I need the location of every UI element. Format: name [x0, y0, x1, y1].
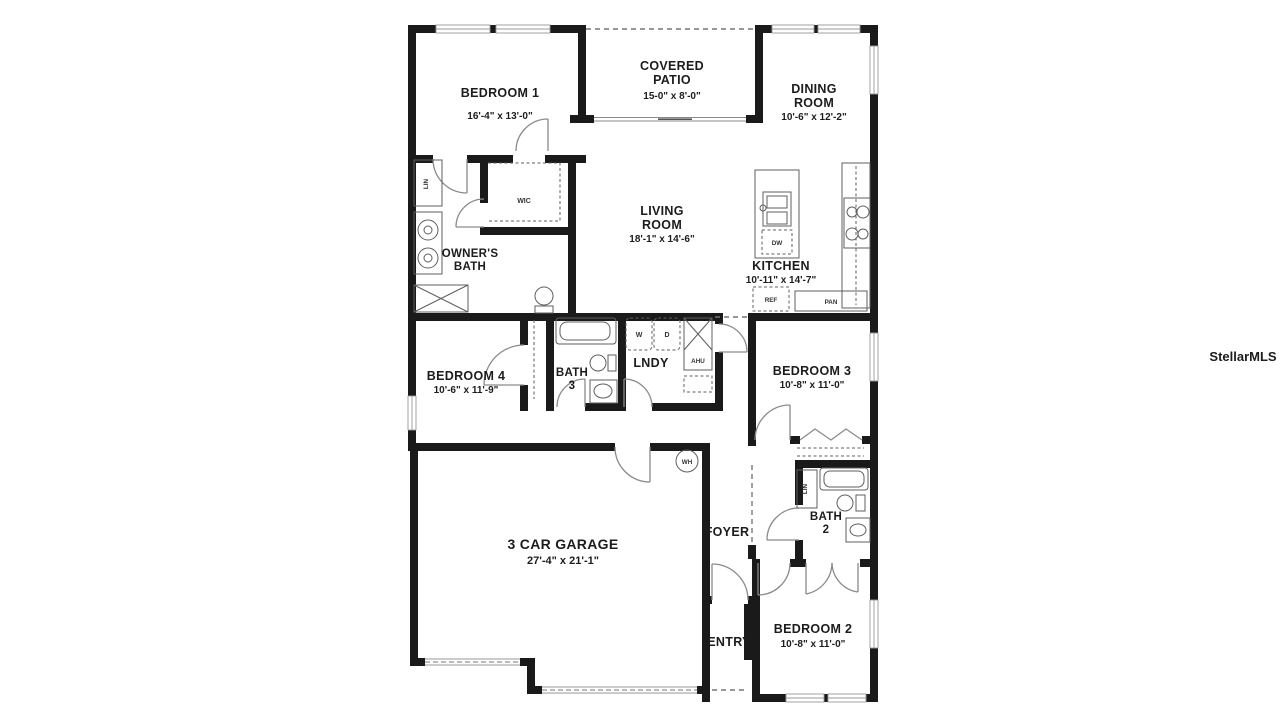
- bedroom2-window: [828, 694, 866, 702]
- bedroom2-side-window: [870, 600, 878, 648]
- kitchen-dims: 10'-11" x 14'-7": [746, 275, 817, 286]
- dining-side-window: [870, 46, 878, 94]
- bedroom1-window: [496, 25, 550, 33]
- dishwasher-label: DW: [772, 240, 783, 247]
- dining-room-dims: 10'-6" x 12'-2": [781, 112, 847, 123]
- linen-label-owners: LIN: [423, 178, 430, 189]
- covered-patio-label: PATIO: [653, 73, 691, 87]
- bedroom1-door: [516, 119, 548, 151]
- garage-label: 3 CAR GARAGE: [508, 536, 619, 552]
- owners-bath-label: OWNER'S: [442, 248, 499, 260]
- bath3-sink: [590, 380, 617, 403]
- laundry-door: [624, 379, 652, 407]
- dining-window: [772, 25, 814, 33]
- dining-room-label: DINING: [791, 82, 837, 96]
- linen-label-bath2: LIN: [802, 483, 809, 494]
- ahu-label: AHU: [691, 358, 705, 365]
- ahu-closet: [684, 318, 712, 392]
- dryer-label: D: [664, 332, 669, 339]
- bath3-toilet: [590, 355, 616, 371]
- bath3-label: 3: [569, 380, 576, 392]
- owners-shower: [414, 285, 468, 312]
- bath3-tub: [556, 318, 616, 344]
- bedroom1-window: [436, 25, 490, 33]
- bedroom3-window: [870, 333, 878, 381]
- bedroom2-label: BEDROOM 2: [774, 622, 852, 636]
- bedroom3-label: BEDROOM 3: [773, 364, 851, 378]
- floor-plan: BEDROOM 1 16'-4" x 13'-0" COVERED PATIO …: [0, 0, 1280, 719]
- entry-label: ENTRY: [707, 635, 751, 649]
- floor-plan-page: BEDROOM 1 16'-4" x 13'-0" COVERED PATIO …: [0, 0, 1280, 719]
- owners-bath-door: [456, 199, 484, 227]
- bedroom3-closet-doors: [800, 429, 862, 440]
- owners-vanity: [414, 212, 442, 274]
- dining-room-label: ROOM: [794, 96, 834, 110]
- mls-watermark: StellarMLS: [1209, 349, 1277, 364]
- garage-doors: [425, 658, 697, 694]
- owners-suite-door: [433, 159, 467, 193]
- wic-label: WIC: [517, 198, 531, 205]
- living-room-label: LIVING: [640, 204, 683, 218]
- ahu-door: [719, 324, 747, 352]
- laundry-label: LNDY: [633, 356, 669, 370]
- dining-window: [818, 25, 860, 33]
- bath2-label: 2: [823, 524, 830, 536]
- bedroom4-window: [408, 396, 416, 430]
- covered-patio-dims: 15-0" x 8'-0": [643, 91, 701, 102]
- bedroom2-window: [786, 694, 824, 702]
- pantry-label: PAN: [825, 299, 838, 306]
- garage-entry-door: [615, 447, 650, 482]
- garage-dims: 27'-4" x 21'-1": [527, 555, 599, 567]
- bath2-sink: [846, 518, 870, 542]
- bath3-label: BATH: [556, 367, 588, 379]
- wic-shelving: [488, 163, 560, 221]
- washer-label: W: [636, 332, 643, 339]
- living-room-label: ROOM: [642, 218, 682, 232]
- kitchen-sink: [760, 192, 791, 226]
- bedroom2-dims: 10'-8" x 11'-0": [781, 639, 846, 650]
- owners-bath-label: BATH: [454, 261, 486, 273]
- bedroom1-label: BEDROOM 1: [461, 86, 539, 100]
- bath2-toilet: [837, 495, 865, 511]
- living-room-dims: 18'-1" x 14'-6": [629, 234, 695, 245]
- bedroom3-closet-shelf: [797, 448, 864, 456]
- front-door: [712, 564, 748, 600]
- water-heater-label: WH: [682, 459, 693, 466]
- bedroom3-door: [755, 405, 790, 440]
- bedroom3-dims: 10'-8" x 11'-0": [780, 380, 845, 391]
- bedroom2-door: [758, 563, 790, 595]
- open-edges: [586, 29, 755, 690]
- refrigerator-label: REF: [765, 297, 778, 304]
- bedroom4-label: BEDROOM 4: [427, 369, 505, 383]
- patio-slider-door: [594, 115, 746, 123]
- bedroom2-closet-doors: [806, 563, 858, 594]
- bedroom1-dims: 16'-4" x 13'-0": [467, 111, 533, 122]
- cooktop: [844, 198, 870, 248]
- owners-toilet: [535, 287, 553, 313]
- bath2-door: [767, 508, 799, 540]
- kitchen-label: KITCHEN: [752, 259, 810, 273]
- bath2-tub: [820, 468, 868, 490]
- foyer-label: FOYER: [705, 525, 750, 539]
- covered-patio-label: COVERED: [640, 59, 704, 73]
- room-labels: BEDROOM 1 16'-4" x 13'-0" COVERED PATIO …: [427, 59, 852, 650]
- bath2-label: BATH: [810, 511, 842, 523]
- bedroom4-dims: 10'-6" x 11'-9": [434, 385, 499, 396]
